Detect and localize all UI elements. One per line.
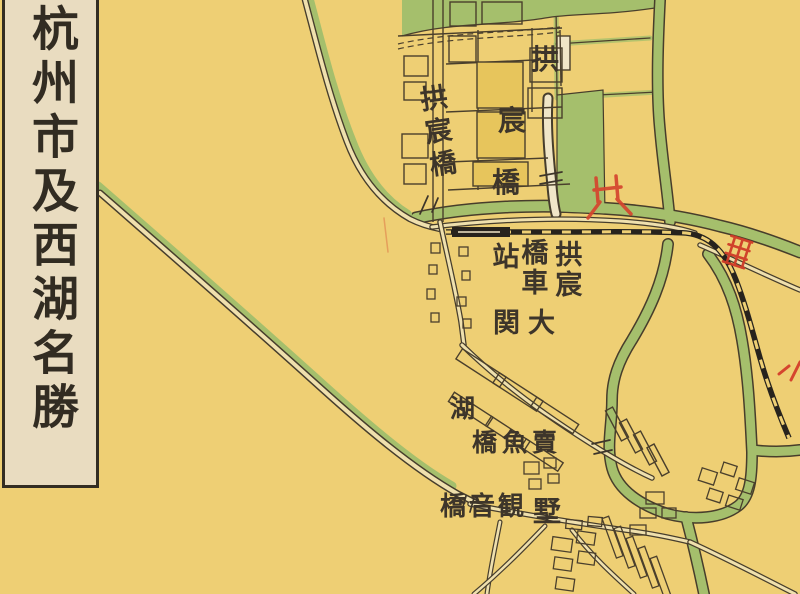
- label-guanyinqiao: 橋音観: [440, 494, 527, 521]
- label-hushu-shu: 墅: [533, 497, 563, 526]
- label-station-col-left: 站: [488, 242, 516, 271]
- label-station-col-right: 拱宸: [551, 240, 579, 300]
- label-gongchenqiao-char-1: 拱: [531, 45, 561, 74]
- label-station-col-middle: 橋車: [517, 238, 545, 298]
- label-gongchenqiao-char-3: 橋: [492, 168, 522, 197]
- map-root: 杭州市及西湖名勝 拱宸橋 拱 宸 橋 拱宸 橋車 站 関大 湖 橋魚賣 橋音観 …: [0, 0, 800, 594]
- label-maiyuqiao: 橋魚賣: [472, 430, 562, 456]
- label-daguan: 関大: [493, 310, 563, 338]
- map-canvas: [0, 0, 800, 594]
- map-title: 杭州市及西湖名勝: [27, 0, 74, 485]
- map-paper: [0, 0, 800, 594]
- map-title-box: 杭州市及西湖名勝: [2, 0, 99, 488]
- label-hushu-hu: 湖: [450, 396, 477, 422]
- label-gongchenqiao-char-2: 宸: [498, 106, 528, 135]
